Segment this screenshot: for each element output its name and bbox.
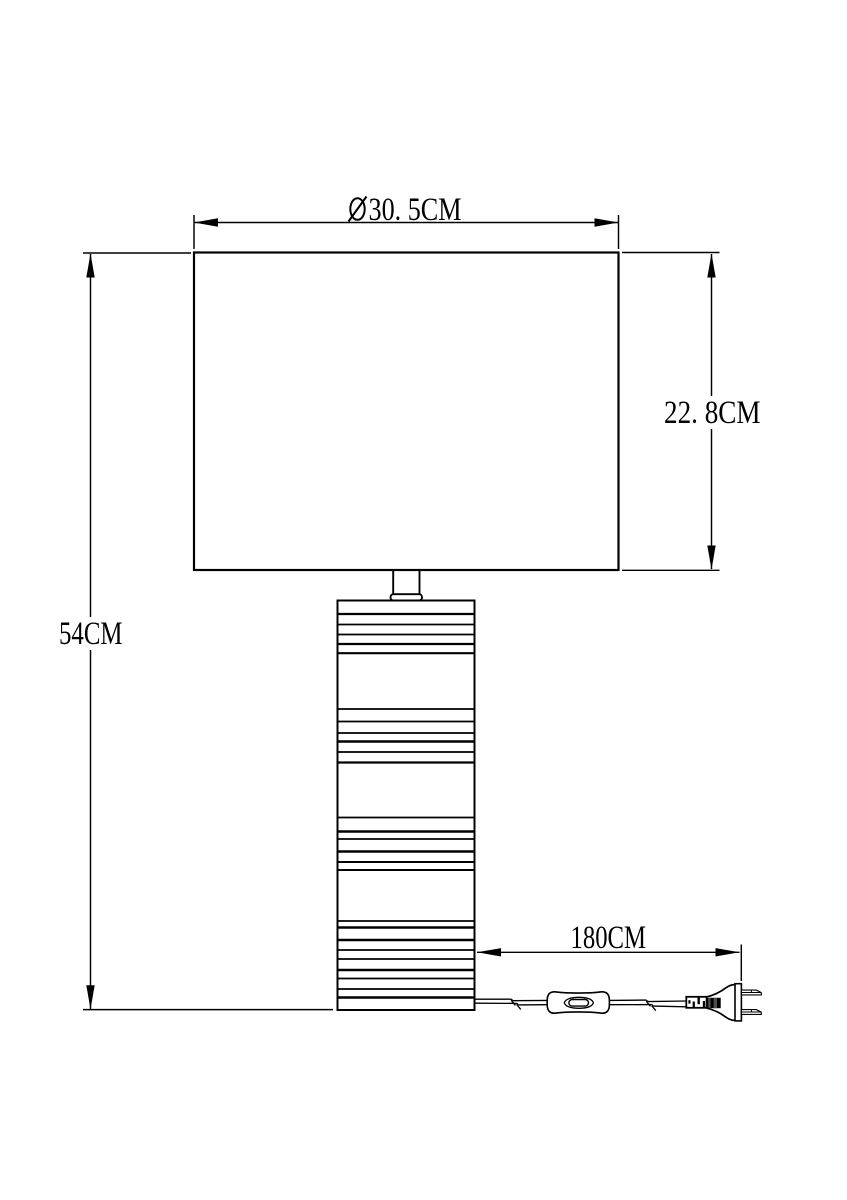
svg-text:30. 5CM: 30. 5CM (369, 192, 462, 228)
svg-text:54CM: 54CM (59, 616, 123, 652)
svg-text:180CM: 180CM (571, 920, 647, 956)
svg-text:22. 8CM: 22. 8CM (664, 395, 761, 431)
